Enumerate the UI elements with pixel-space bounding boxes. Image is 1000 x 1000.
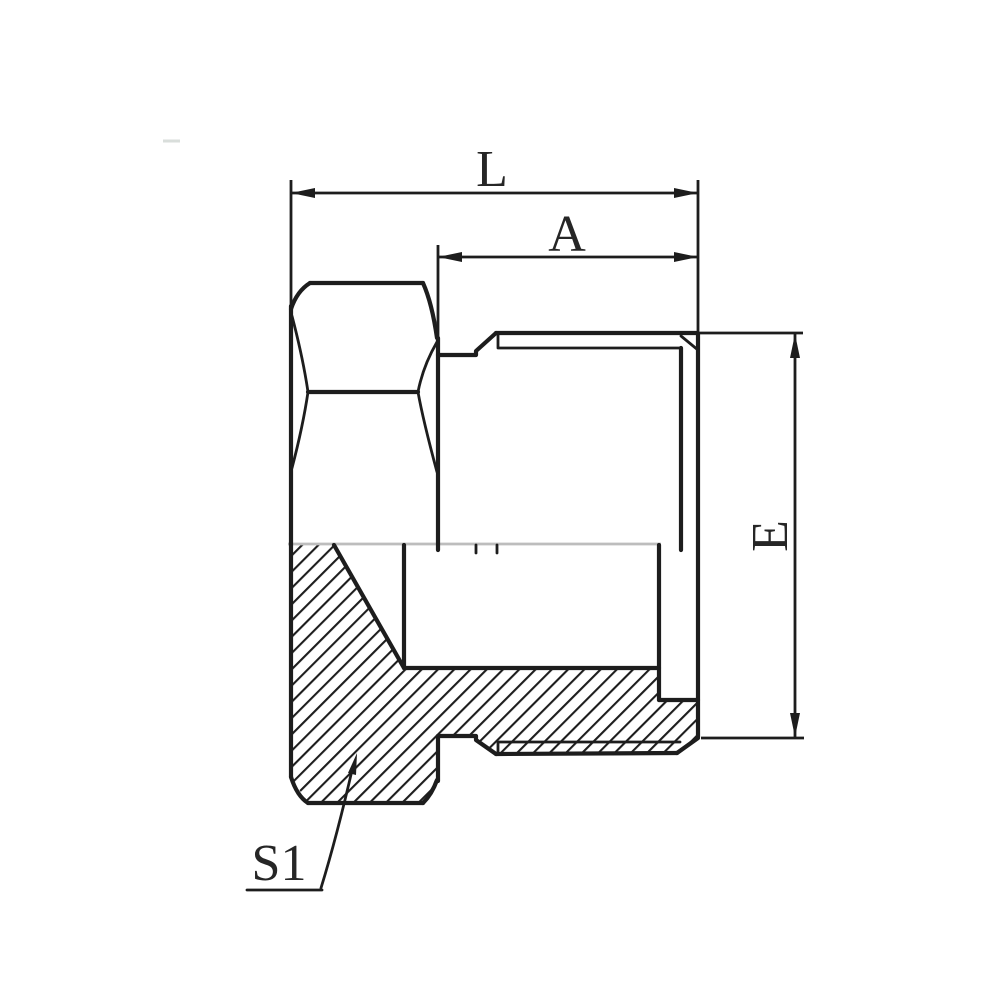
dimension-l: L bbox=[291, 141, 698, 333]
arrowhead-bottom bbox=[790, 713, 800, 737]
drawing-canvas: L A E S1 bbox=[0, 0, 1000, 1000]
fitting-section-drawing: L A E S1 bbox=[0, 0, 1000, 1000]
hex-chamfer-top-left bbox=[291, 283, 310, 309]
dimension-a: A bbox=[438, 206, 698, 338]
thread-root-top bbox=[498, 334, 681, 348]
hex-face-edge-left bbox=[292, 316, 308, 468]
hex-face-edge-right bbox=[418, 342, 437, 472]
dimension-e: E bbox=[700, 333, 804, 738]
arrowhead-top bbox=[790, 334, 800, 358]
arrowhead-left bbox=[291, 188, 315, 198]
arrowhead-right bbox=[674, 188, 698, 198]
dim-label-e: E bbox=[742, 520, 799, 552]
undercut-top bbox=[438, 333, 496, 355]
dim-label-a: A bbox=[548, 206, 586, 263]
arrowhead-left bbox=[438, 252, 462, 262]
profile-stubs bbox=[476, 545, 497, 553]
callout-label-s1: S1 bbox=[252, 835, 307, 892]
dim-label-l: L bbox=[476, 141, 508, 198]
hex-chamfer-top-right bbox=[423, 283, 437, 338]
arrowhead-right bbox=[674, 252, 698, 262]
nose-chamfer-top bbox=[681, 336, 698, 350]
thread-crest-bottom bbox=[496, 753, 677, 754]
